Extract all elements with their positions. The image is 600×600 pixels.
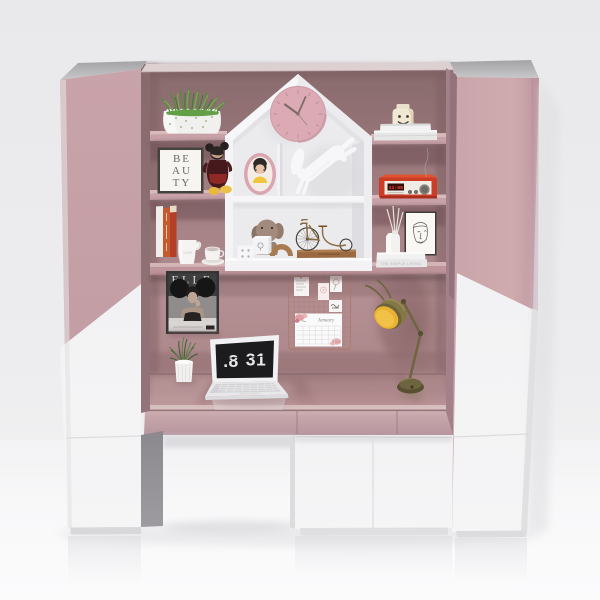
svg-text:BE: BE: [173, 153, 191, 165]
svg-text:AU: AU: [172, 165, 192, 177]
svg-text:11:05: 11:05: [389, 185, 404, 191]
svg-text:.8: .8: [223, 351, 239, 371]
svg-text:31: 31: [246, 350, 266, 370]
svg-text:January: January: [318, 319, 335, 324]
svg-text:TY: TY: [173, 177, 192, 189]
svg-text:LOVE: LOVE: [183, 251, 193, 255]
svg-text:THE SIMPLE LIVING: THE SIMPLE LIVING: [381, 262, 422, 266]
